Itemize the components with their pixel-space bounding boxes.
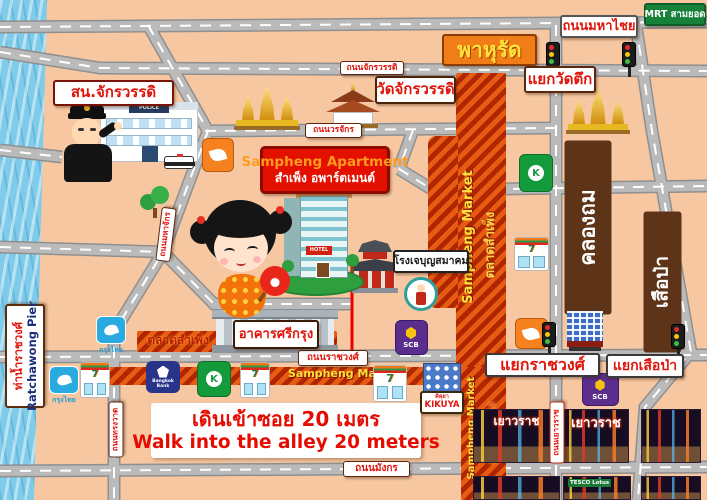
kasikorn-bank-icon: K [196,361,232,397]
seven-eleven-icon: 7 [514,237,549,271]
bangkok-bank-icon: Bangkok Bank [145,361,181,393]
kikuya-shop-label: คิคุยา KIKUYA [420,391,464,414]
song-wat-road-label: ถนนทรงวาด [109,402,124,458]
kasikorn-bank-icon: K [518,154,554,192]
instruction-en: Walk into the alley 20 meters [132,433,440,452]
kikuya-building [423,363,461,393]
instruction-th: เดินเข้าซอย 20 เมตร [192,409,380,430]
krungthai-label: กรุงไทย [99,345,123,356]
map-canvas: Sampheng Market ตลาดสำเพ็ง Sampheng Mark… [0,0,707,500]
seven-eleven-icon: 7 [240,362,270,398]
apartment-name-th: สำเพ็ง อพาร์ตเมนต์ [275,172,375,185]
traffic-light-icon [621,42,637,78]
chakkrawat-road-label: ถนนจักรวรรดิ [340,61,404,75]
pier-name-en: Ratchawong Pier [26,301,38,411]
walk-instruction-box: เดินเข้าซอย 20 เมตร Walk into the alley … [151,403,421,458]
phahurat-district-label: พาหุรัด [442,34,537,66]
bangkok-bank-label: Bangkok Bank [146,379,180,389]
thanachart-bank-icon [201,138,235,172]
scb-label: SCB [592,393,608,401]
si-krung-building-label: อาคารศรีกรุง [233,320,319,349]
ratchawong-road-label: ถนนราชวงศ์ [298,350,368,366]
worachak-road-label: ถนนวรจักร [305,123,362,138]
mrt-sam-yot-badge: MRT สามยอด [644,3,706,26]
mangkon-road-label: ถนนมังกร [343,461,410,477]
seven-eleven-icon: 7 [80,362,110,398]
wat-chakkrawat-label: วัดจักรวรรดิ [375,76,456,104]
deity-emblem-icon [404,277,440,315]
wat-chakkrawat-temple-icon [326,82,380,128]
scb-label: SCB [403,341,419,349]
ratchawong-pier-label: ท่าน้ำราชวงศ์ Ratchawong Pier [5,304,45,408]
rong-je-shrine-label: โรงเจบุญสมาคม [393,250,469,273]
kikuya-name-en: KIKUYA [424,401,459,410]
sampheng-apartment-title-box: Sampheng Apartment สำเพ็ง อพาร์ตเมนต์ [260,146,390,194]
apartment-name-en: Sampheng Apartment [242,155,409,169]
scb-bank-icon: SCB [394,320,428,355]
hotel-sign: HOTEL [306,246,332,255]
wat-tuek-intersection-label: แยกวัดตึก [524,66,596,93]
seven-eleven-icon: 7 [373,365,407,402]
yaowarat-road-label: ถนนเยาวราช [550,402,565,464]
temple-icon [234,84,300,130]
maha-chai-road-label: ถนนมหาไชย [560,15,638,38]
suea-pa-intersection-label: แยกเสือป่า [606,354,684,378]
police-car-icon [164,156,194,169]
krungthai-bank-icon: กรุงไทย [94,316,128,356]
chinese-girl-cartoon [190,190,294,322]
office-building-icon [567,311,603,351]
police-station-label: สน.จักรวรรดิ [53,80,174,106]
ratchawong-intersection-label: แยกราชวงศ์ [485,353,600,377]
krungthai-label: กรุงไทย [52,395,76,406]
police-officer-cartoon [56,100,130,184]
temple-icon [566,86,630,134]
krungthai-bank-icon: กรุงไทย [47,366,81,406]
pier-name-th: ท่าน้ำราชวงศ์ [12,322,24,390]
